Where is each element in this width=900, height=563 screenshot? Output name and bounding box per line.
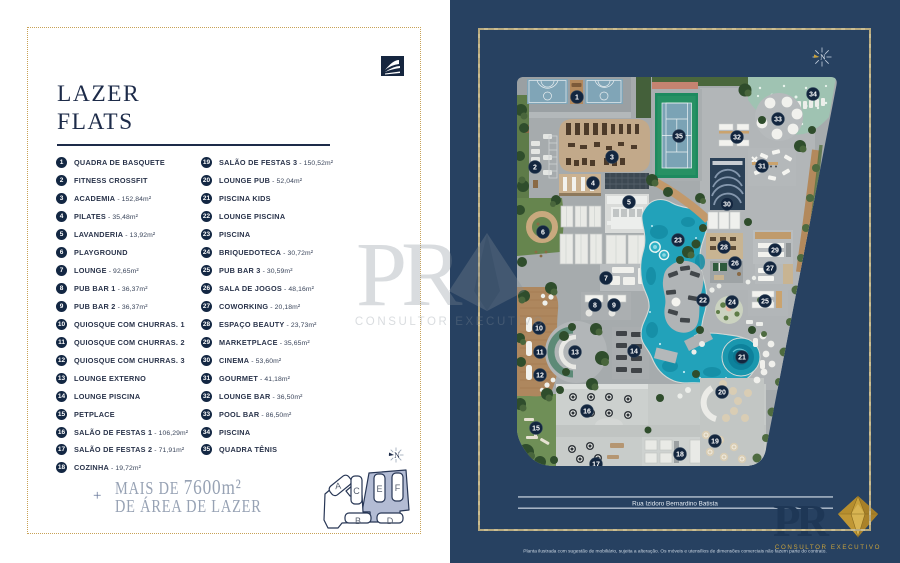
svg-text:D: D <box>387 516 394 526</box>
svg-text:C: C <box>353 486 360 496</box>
svg-text:F: F <box>395 483 401 493</box>
svg-text:E: E <box>376 484 382 494</box>
svg-text:B: B <box>355 516 361 526</box>
svg-text:A: A <box>334 481 341 492</box>
svg-text:CONSULTOR EXECUTIVO: CONSULTOR EXECUTIVO <box>775 544 881 551</box>
svg-text:N: N <box>394 451 400 460</box>
